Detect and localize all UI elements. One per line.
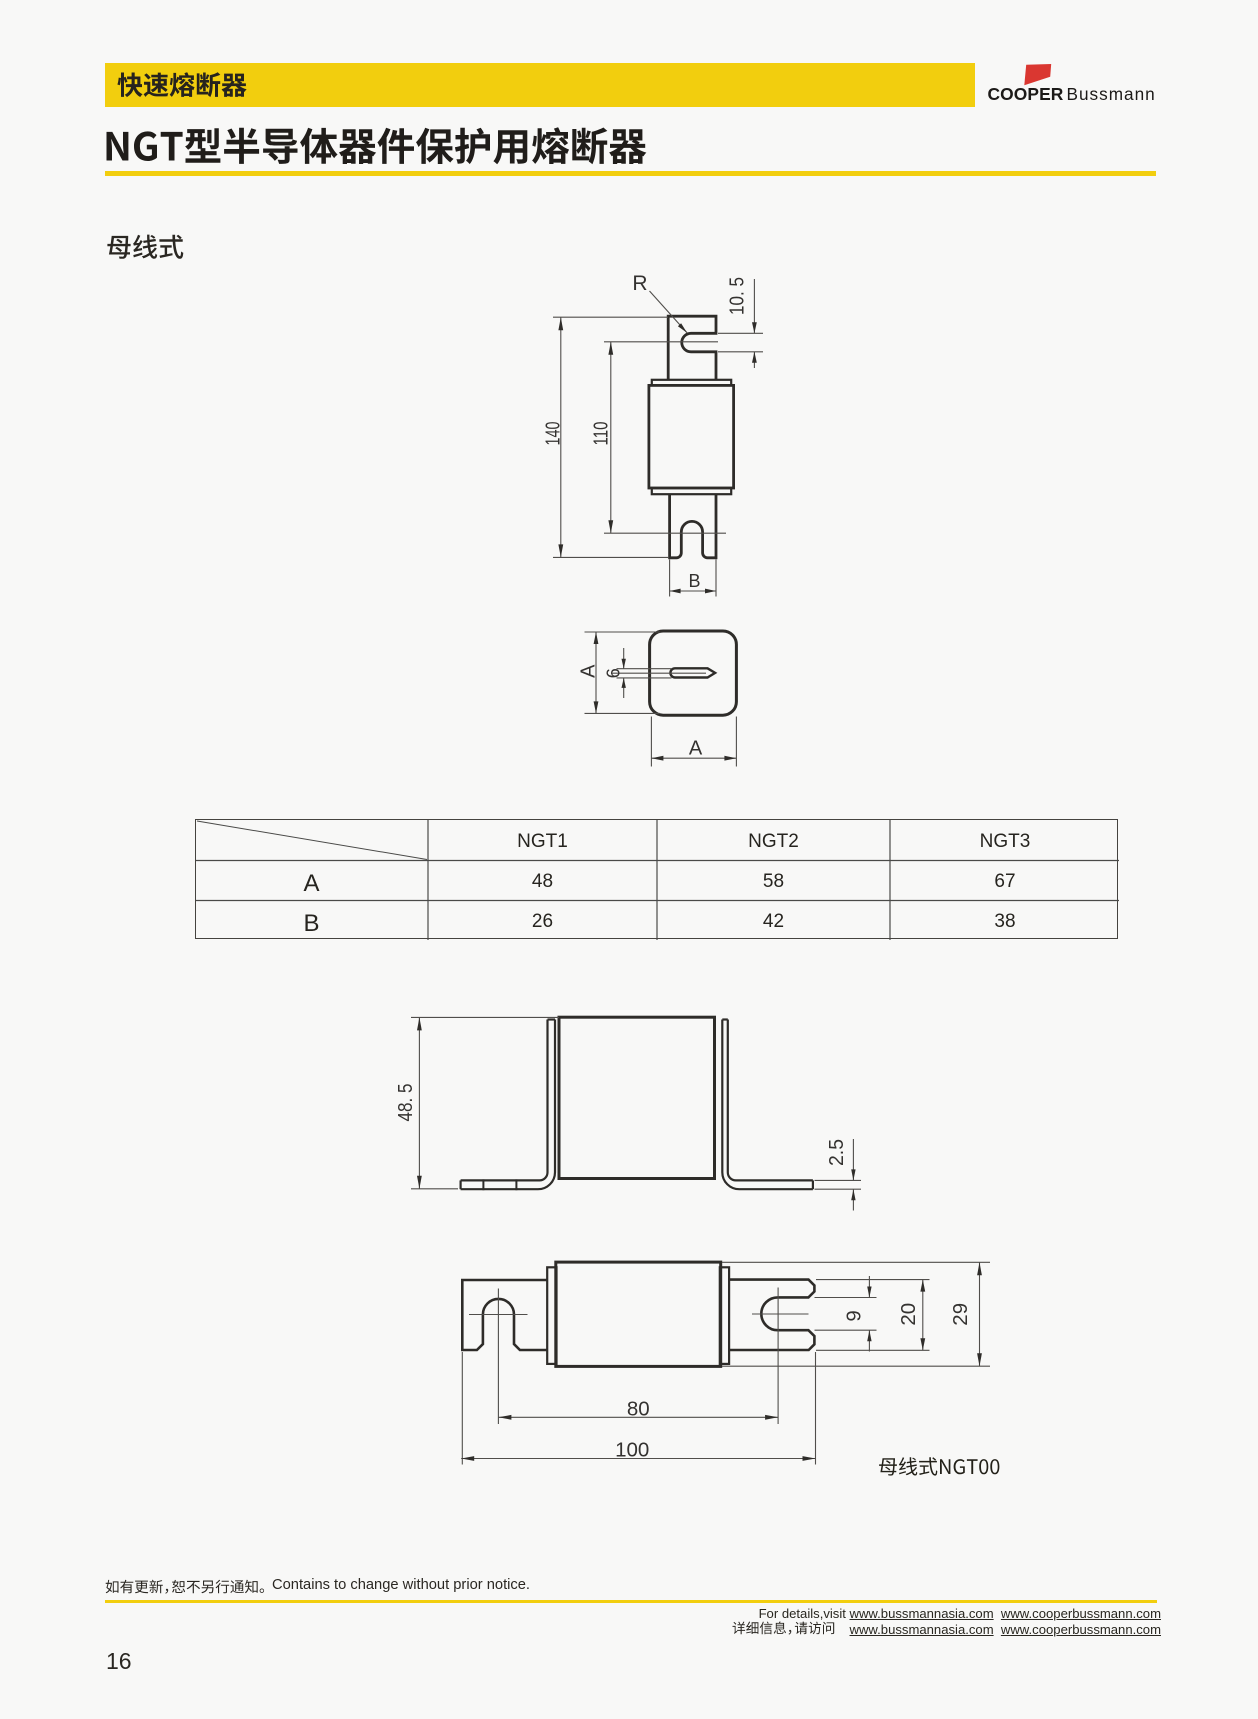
svg-text:Bussmann: Bussmann xyxy=(1067,84,1156,104)
svg-text:100: 100 xyxy=(615,1439,649,1462)
svg-text:110: 110 xyxy=(590,422,613,446)
svg-text:9: 9 xyxy=(843,1310,866,1321)
svg-text:NGT2: NGT2 xyxy=(748,831,799,852)
svg-text:NGT3: NGT3 xyxy=(980,831,1031,852)
svg-text:B: B xyxy=(688,571,700,591)
svg-text:80: 80 xyxy=(627,1398,650,1421)
svg-text:29: 29 xyxy=(949,1303,972,1326)
svg-text:R: R xyxy=(632,272,647,295)
svg-text:A: A xyxy=(689,738,703,760)
svg-text:COOPER: COOPER xyxy=(988,84,1064,104)
svg-text:6: 6 xyxy=(603,668,623,678)
svg-text:10. 5: 10. 5 xyxy=(726,277,749,315)
svg-text:A: A xyxy=(303,870,319,897)
svg-text:NGT1: NGT1 xyxy=(517,831,568,852)
svg-text:58: 58 xyxy=(763,871,784,892)
svg-text:48. 5: 48. 5 xyxy=(394,1084,417,1122)
svg-text:48: 48 xyxy=(532,871,553,892)
svg-text:20: 20 xyxy=(897,1303,920,1326)
svg-text:140: 140 xyxy=(542,422,565,446)
svg-text:42: 42 xyxy=(763,911,784,932)
svg-text:B: B xyxy=(303,910,319,937)
svg-text:2.5: 2.5 xyxy=(825,1139,848,1166)
svg-text:A: A xyxy=(578,664,600,678)
svg-text:26: 26 xyxy=(532,911,553,932)
svg-text:67: 67 xyxy=(994,871,1015,892)
svg-text:38: 38 xyxy=(994,911,1015,932)
